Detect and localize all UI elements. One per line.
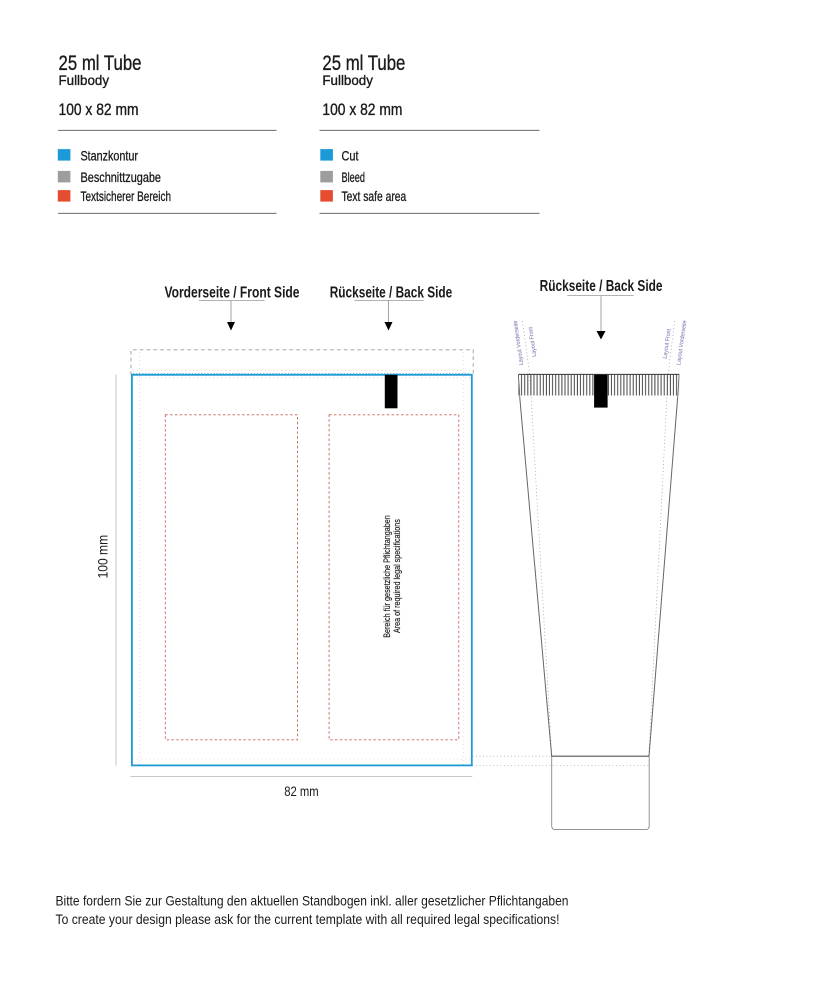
svg-text:Bitte fordern Sie zur Gestaltu: Bitte fordern Sie zur Gestaltung den akt… bbox=[56, 893, 569, 909]
svg-text:Stanzkontur: Stanzkontur bbox=[81, 147, 139, 163]
svg-text:Cut: Cut bbox=[342, 147, 359, 163]
svg-text:Text safe area: Text safe area bbox=[342, 188, 407, 204]
svg-text:To create your design please a: To create your design please ask for the… bbox=[56, 911, 560, 927]
svg-text:Rückseite / Back Side: Rückseite / Back Side bbox=[540, 278, 663, 295]
svg-text:Beschnittzugabe: Beschnittzugabe bbox=[81, 169, 162, 185]
svg-text:Rückseite / Back Side: Rückseite / Back Side bbox=[330, 284, 453, 301]
svg-text:100 x 82 mm: 100 x 82 mm bbox=[59, 101, 139, 119]
svg-text:100 x 82 mm: 100 x 82 mm bbox=[322, 101, 402, 119]
svg-text:Bleed: Bleed bbox=[342, 169, 366, 185]
svg-text:Textsicherer Bereich: Textsicherer Bereich bbox=[81, 188, 172, 204]
svg-text:Vorderseite / Front Side: Vorderseite / Front Side bbox=[165, 284, 300, 301]
svg-text:Area of required legal specifi: Area of required legal specifications bbox=[392, 519, 403, 633]
svg-text:100 mm: 100 mm bbox=[95, 535, 111, 579]
svg-text:Layout Vorderseite: Layout Vorderseite bbox=[676, 320, 688, 366]
svg-text:Layout Front: Layout Front bbox=[663, 328, 673, 359]
svg-text:Layout Vorderseite: Layout Vorderseite bbox=[513, 320, 525, 366]
svg-text:82 mm: 82 mm bbox=[284, 783, 318, 799]
svg-text:Fullbody: Fullbody bbox=[322, 72, 373, 88]
svg-text:Layout Front: Layout Front bbox=[528, 326, 538, 357]
svg-text:Fullbody: Fullbody bbox=[59, 72, 110, 88]
